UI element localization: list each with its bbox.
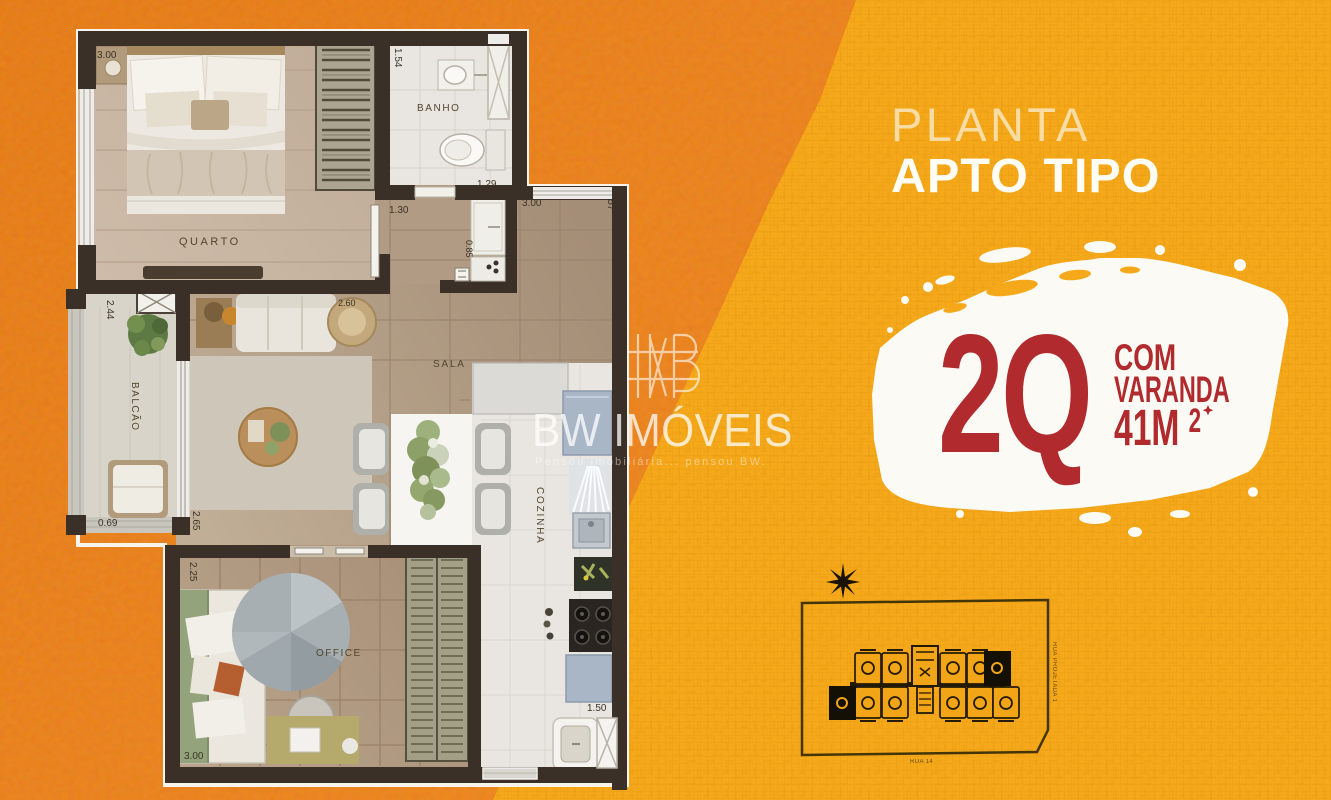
svg-text:1.50: 1.50 [587, 703, 607, 714]
svg-text:1.30: 1.30 [389, 205, 409, 216]
svg-text:BALCÃO: BALCÃO [129, 382, 142, 432]
svg-text:2: 2 [1189, 402, 1201, 440]
svg-text:BW IMÓVEIS: BW IMÓVEIS [532, 405, 793, 456]
svg-text:41M: 41M [1114, 400, 1179, 457]
svg-text:RUA 14: RUA 14 [910, 759, 933, 765]
svg-text:2.65: 2.65 [190, 511, 201, 531]
svg-text:2.25: 2.25 [187, 562, 198, 582]
svg-text:APTO TIPO: APTO TIPO [891, 149, 1161, 203]
svg-text:SALA: SALA [433, 359, 466, 370]
svg-text:1.54: 1.54 [392, 48, 403, 68]
svg-text:0.85: 0.85 [464, 240, 474, 258]
svg-text:PLANTA: PLANTA [891, 98, 1091, 151]
svg-text:BANHO: BANHO [417, 103, 461, 114]
svg-text:COZINHA: COZINHA [534, 487, 545, 545]
svg-text:QUARTO: QUARTO [179, 236, 241, 248]
svg-text:2.44: 2.44 [104, 300, 115, 320]
svg-text:2.60: 2.60 [338, 298, 356, 308]
svg-text:Pensou imobiliária... pensou B: Pensou imobiliária... pensou BW. [535, 456, 767, 468]
svg-text:3.00: 3.00 [184, 751, 204, 762]
svg-text:2Q: 2Q [938, 299, 1090, 488]
svg-text:3.00: 3.00 [97, 50, 117, 61]
svg-text:OFFICE: OFFICE [316, 648, 362, 659]
svg-text:0.69: 0.69 [98, 518, 118, 529]
svg-text:RUA PROJETADA 1: RUA PROJETADA 1 [1051, 642, 1057, 703]
